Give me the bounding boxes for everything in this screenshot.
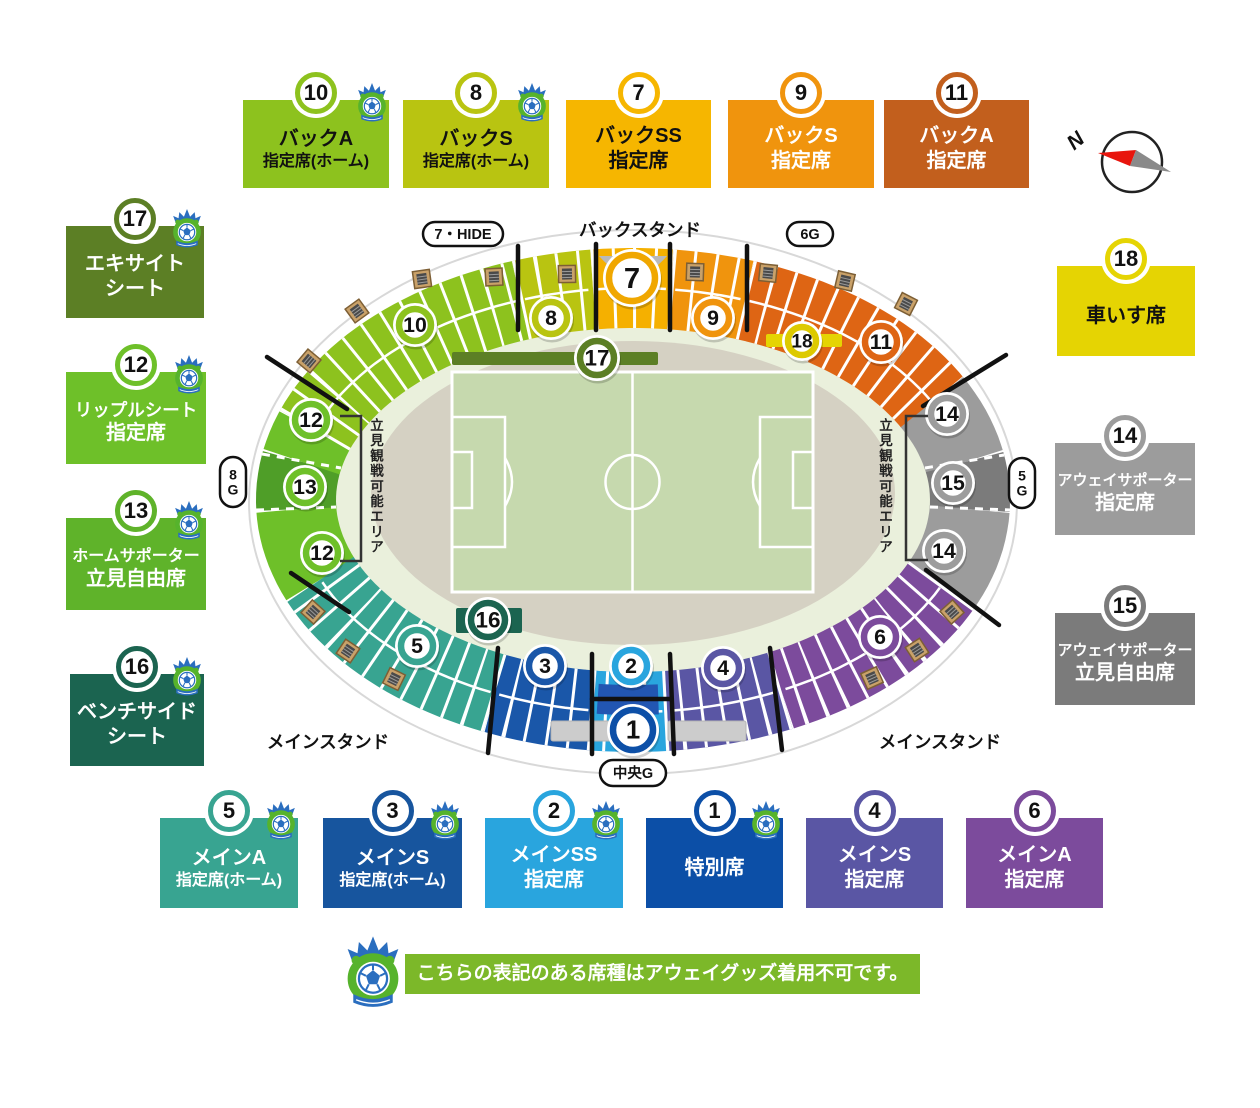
svg-text:16: 16 [476,608,501,633]
seat-card-label: 指定席 [106,421,166,446]
seat-card-number: 2 [548,798,560,824]
seat-card-number: 15 [1113,593,1137,619]
svg-text:10: 10 [403,313,427,337]
seat-card-label: メインSS [511,843,598,868]
seat-card-number: 13 [124,498,148,524]
seat-card-5: 5メインA指定席(ホーム) [160,818,298,908]
gate-door-icon [835,271,855,291]
gate-door-icon [558,265,575,282]
seat-card-badge-14: 14 [1104,415,1146,457]
seat-card-17: 17エキサイトシート [66,226,204,318]
svg-text:17: 17 [585,346,610,371]
svg-text:14: 14 [935,402,959,426]
seat-card-badge-1: 1 [694,790,736,832]
svg-text:14: 14 [932,539,956,563]
seat-card-badge-11: 11 [936,72,978,114]
seat-card-label: 車いす席 [1086,304,1166,329]
seat-card-number: 1 [708,798,720,824]
svg-text:能: 能 [370,493,384,509]
away-goods-note: こちらの表記のある席種はアウェイグッズ着用不可です。 [405,954,920,994]
seat-card-badge-8: 8 [455,72,497,114]
svg-text:観: 観 [370,447,384,463]
seat-card-label: ベンチサイド [77,700,197,725]
gate-door-icon [686,263,704,281]
seat-card-label: メインS [838,843,911,868]
stadium-seating-map: 10879111817121312141514516321467・HIDE6G8… [0,0,1260,1108]
seat-card-label: エキサイト [85,252,185,277]
seat-card-3: 3メインS指定席(ホーム) [323,818,462,908]
svg-text:13: 13 [293,475,317,499]
gate-label-中央G: 中央G [600,760,666,786]
seat-card-number: 3 [386,798,398,824]
svg-text:7・HIDE: 7・HIDE [434,227,492,243]
seat-card-label: 指定席(ホーム) [263,152,369,172]
seat-card-badge-12: 12 [115,344,157,386]
seat-card-label: 指定席(ホーム) [423,152,529,172]
seat-card-11: 11バックA指定席 [884,100,1029,188]
compass-icon: N [1063,127,1171,192]
seat-card-label: ホームサポーター [72,547,200,567]
svg-text:11: 11 [870,330,893,354]
stand-label: メインスタンド [267,732,389,752]
gate-label-7・HIDE: 7・HIDE [423,222,503,246]
bellmare-crest-icon [515,83,549,123]
bellmare-crest-icon [355,83,389,123]
seat-card-label: シート [105,277,165,302]
svg-text:15: 15 [941,471,965,495]
seat-card-number: 16 [125,654,149,680]
seat-card-label: 指定席 [771,149,831,174]
svg-text:立: 立 [879,417,893,433]
seat-card-badge-3: 3 [372,790,414,832]
seat-card-label: バックA [919,124,993,149]
bellmare-crest-icon [589,801,623,841]
svg-text:18: 18 [791,331,812,352]
seat-card-number: 14 [1113,423,1137,449]
seat-card-label: 指定席 [524,868,584,893]
svg-text:4: 4 [717,656,729,680]
seat-card-label: 指定席 [1005,868,1065,893]
seat-card-13: 13ホームサポーター立見自由席 [66,518,206,610]
seat-card-label: 指定席 [609,149,669,174]
gate-door-icon [412,269,431,288]
bellmare-crest-icon [172,355,206,395]
seat-card-number: 11 [945,80,968,106]
seat-card-label: メインS [356,846,429,871]
svg-text:12: 12 [310,541,334,565]
seat-card-15: 15アウェイサポーター立見自由席 [1055,613,1195,705]
seat-card-2: 2メインSS指定席 [485,818,623,908]
seat-card-badge-18: 18 [1105,238,1147,280]
seat-card-label: アウェイサポーター [1057,472,1192,491]
svg-text:観: 観 [879,447,893,463]
seat-card-label: 指定席(ホーム) [339,871,445,891]
seat-card-badge-15: 15 [1104,585,1146,627]
seat-card-10: 10バックA指定席(ホーム) [243,100,389,188]
seat-card-badge-16: 16 [116,646,158,688]
seat-card-number: 9 [795,80,807,106]
svg-text:5: 5 [411,634,423,658]
svg-text:8: 8 [229,467,237,483]
bellmare-crest-icon [172,501,206,541]
seat-card-4: 4メインS指定席 [806,818,943,908]
seat-card-9: 9バックS指定席 [728,100,874,188]
svg-text:2: 2 [625,654,637,678]
seat-card-16: 16ベンチサイドシート [70,674,204,766]
seat-card-badge-9: 9 [780,72,822,114]
seat-card-label: 指定席 [927,149,987,174]
seat-card-label: バックS [764,124,837,149]
svg-text:可: 可 [370,479,384,494]
seat-card-number: 7 [632,80,644,106]
svg-text:8: 8 [545,306,557,330]
seat-card-14: 14アウェイサポーター指定席 [1055,443,1195,535]
svg-text:1: 1 [626,717,640,745]
bellmare-crest-icon [342,936,404,1010]
pitch-tunnel [668,721,746,741]
seat-card-badge-2: 2 [533,790,575,832]
seat-card-label: リップルシート [75,400,198,422]
svg-text:能: 能 [879,493,893,509]
seat-card-number: 10 [304,80,328,106]
svg-text:7: 7 [624,263,640,295]
svg-text:3: 3 [539,654,551,678]
seat-card-label: メインA [997,843,1071,868]
seat-card-number: 6 [1028,798,1040,824]
seat-card-6: 6メインA指定席 [966,818,1103,908]
seat-card-number: 8 [470,80,482,106]
seat-bar-17 [452,352,658,365]
svg-text:6G: 6G [800,227,819,243]
seat-card-label: 特別席 [685,856,745,881]
seat-card-badge-17: 17 [114,198,156,240]
svg-text:戦: 戦 [879,463,893,479]
svg-text:5: 5 [1018,468,1026,484]
seat-card-label: 立見自由席 [1075,661,1175,686]
bellmare-crest-icon [428,801,462,841]
seat-card-badge-4: 4 [854,790,896,832]
seat-card-1: 1特別席 [646,818,783,908]
stand-label: メインスタンド [879,732,1001,752]
seat-card-label: 指定席(ホーム) [176,871,282,891]
svg-text:見: 見 [369,433,384,448]
seat-card-label: シート [107,725,167,750]
svg-text:G: G [1017,483,1028,499]
svg-text:12: 12 [299,408,323,432]
svg-text:エ: エ [370,509,384,524]
seat-card-label: バックSS [595,124,682,149]
svg-text:ア: ア [370,540,384,555]
bellmare-crest-icon [170,209,204,249]
seat-card-number: 17 [123,206,147,232]
svg-text:N: N [1063,127,1090,155]
seat-card-number: 4 [868,798,880,824]
gate-door-icon [759,264,778,283]
svg-text:戦: 戦 [370,463,384,479]
svg-text:ア: ア [879,540,893,555]
seat-card-8: 8バックS指定席(ホーム) [403,100,549,188]
seat-card-number: 18 [1114,246,1138,272]
svg-text:可: 可 [879,479,893,494]
svg-text:中央G: 中央G [613,764,653,782]
svg-text:見: 見 [878,433,893,448]
seat-card-label: メインA [192,846,266,871]
seat-card-18: 18車いす席 [1057,266,1195,356]
seat-card-badge-13: 13 [115,490,157,532]
seat-card-label: バックS [439,127,512,152]
svg-text:リ: リ [370,524,384,539]
seat-card-label: バックA [279,127,353,152]
gate-label-8G: 8G [220,457,246,507]
seat-card-label: 指定席 [845,868,905,893]
seat-card-7: 7バックSS指定席 [566,100,711,188]
seat-card-badge-5: 5 [208,790,250,832]
seat-card-label: アウェイサポーター [1057,642,1192,661]
football-pitch [452,372,813,592]
svg-text:9: 9 [707,306,719,330]
svg-text:リ: リ [879,524,893,539]
seat-card-badge-6: 6 [1014,790,1056,832]
gate-label-6G: 6G [787,222,833,246]
bellmare-crest-icon [170,657,204,697]
bellmare-crest-icon [749,801,783,841]
seat-card-badge-10: 10 [295,72,337,114]
bellmare-crest-icon [264,801,298,841]
seat-card-12: 12リップルシート指定席 [66,372,206,464]
seat-card-number: 12 [124,352,148,378]
stand-label: バックスタンド [579,220,701,240]
svg-text:G: G [228,482,239,498]
seat-card-label: 指定席 [1095,491,1155,516]
gate-door-icon [485,268,503,286]
svg-text:立: 立 [370,417,384,433]
svg-text:6: 6 [874,625,886,649]
svg-text:エ: エ [879,509,893,524]
seat-card-label: 立見自由席 [86,567,186,592]
seat-card-badge-7: 7 [618,72,660,114]
seat-card-number: 5 [223,798,235,824]
gate-label-5G: 5G [1009,458,1035,508]
